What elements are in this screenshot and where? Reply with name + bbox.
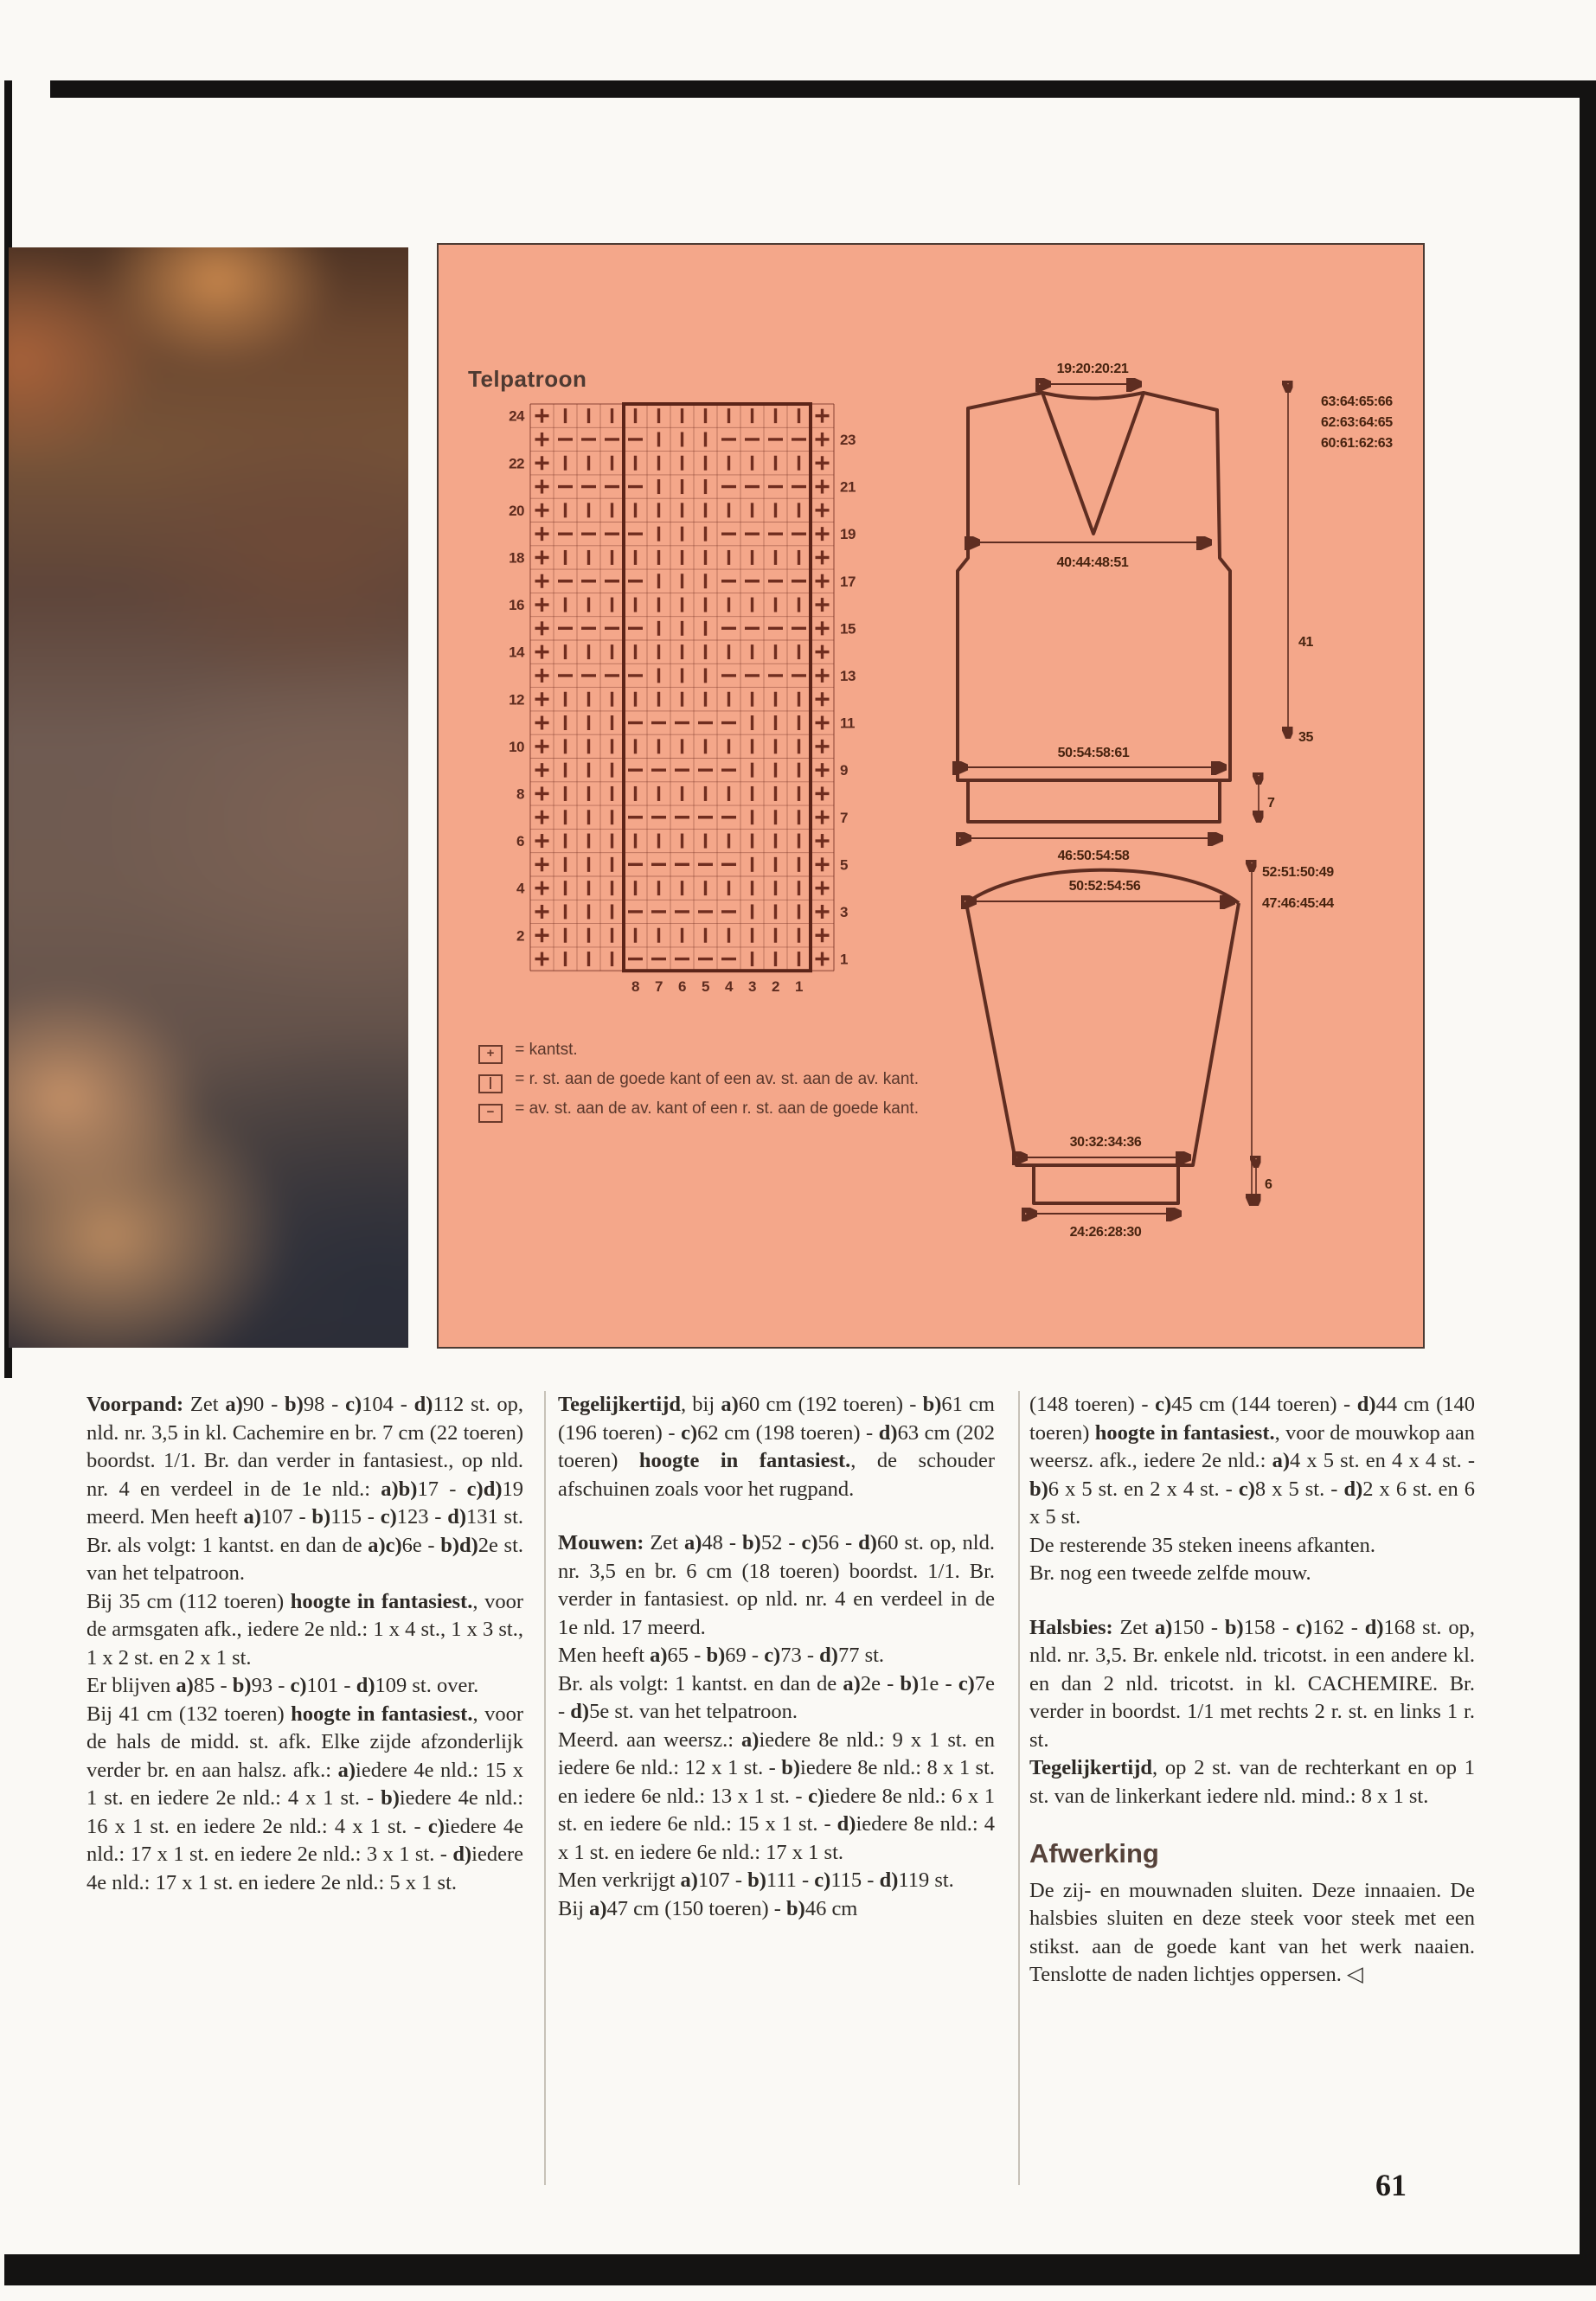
v-neck-line [1042, 393, 1144, 534]
svg-text:23: 23 [840, 432, 856, 448]
instruction-column-2: Tegelijkertijd, bij a)60 cm (192 toeren)… [558, 1391, 995, 1923]
legend-text: = r. st. aan de goede kant of een av. st… [510, 1070, 919, 1088]
paragraph: Br. nog een tweede zelfde mouw. [1029, 1560, 1475, 1588]
paragraph: Mouwen: Zet a)48 - b)52 - c)56 - d)60 st… [558, 1529, 995, 1642]
dim-rib-height: 7 [1267, 796, 1275, 811]
knitting-chart: 2423222120191817161514131211109876543218… [506, 390, 862, 1022]
dim-sleeve-upper-width: 30:32:34:36 [1070, 1135, 1142, 1150]
legend-symbol-icon: + [478, 1045, 503, 1064]
dim-sleeve-total-length: 52:51:50:49 [1262, 865, 1334, 880]
sleeve-cuff [1034, 1165, 1178, 1203]
paragraph: Br. als volgt: 1 kantst. en dan de a)2e … [558, 1670, 995, 1727]
svg-text:4: 4 [725, 978, 734, 995]
legend-symbol-icon: − [478, 1104, 503, 1123]
svg-text:8: 8 [516, 785, 524, 802]
legend-text: = av. st. aan de av. kant of een r. st. … [510, 1099, 919, 1118]
dim-cuff-width: 24:26:28:30 [1070, 1225, 1142, 1240]
photo-blur-layer [9, 247, 408, 1348]
svg-text:2: 2 [772, 978, 779, 995]
svg-text:4: 4 [516, 881, 525, 897]
svg-text:7: 7 [655, 978, 663, 995]
dim-sleeve-top-width: 50:52:54:56 [1069, 879, 1141, 894]
svg-text:14: 14 [509, 644, 525, 661]
svg-text:19: 19 [840, 526, 856, 542]
paragraph: De resterende 35 steken ineens afkanten. [1029, 1532, 1475, 1561]
svg-text:20: 20 [509, 503, 524, 519]
instructions: Voorpand: Zet a)90 - b)98 - c)104 - d)11… [0, 1391, 1596, 2252]
knitting-chart-svg: 2423222120191817161514131211109876543218… [506, 390, 862, 1022]
paragraph: De zij- en mouwnaden sluiten. Deze innaa… [1029, 1877, 1475, 1990]
legend-text: = kantst. [510, 1041, 578, 1059]
front-back-schematic: 19:20:20:21 40:44:48:51 50:54:58:61 46:5… [914, 335, 1433, 871]
dim-heights-3: 60:61:62:63 [1321, 436, 1393, 451]
legend-item-1: + = kantst. [478, 1039, 997, 1064]
svg-text:15: 15 [840, 620, 856, 637]
legend-item-2: | = r. st. aan de goede kant of een av. … [478, 1068, 997, 1093]
instruction-column-1: Voorpand: Zet a)90 - b)98 - c)104 - d)11… [87, 1391, 523, 1897]
dim-chest-width: 40:44:48:51 [1057, 555, 1129, 570]
svg-text:24: 24 [509, 408, 525, 425]
svg-text:12: 12 [509, 691, 524, 708]
svg-text:3: 3 [840, 904, 848, 920]
dim-heights-1: 63:64:65:66 [1321, 394, 1393, 409]
dim-heights-2: 62:63:64:65 [1321, 415, 1393, 430]
section-heading: Afwerking [1029, 1840, 1475, 1868]
svg-text:1: 1 [840, 952, 848, 968]
svg-text:5: 5 [702, 978, 709, 995]
paragraph: Tegelijkertijd, op 2 st. van de rechterk… [1029, 1754, 1475, 1811]
svg-text:16: 16 [509, 597, 524, 613]
legend-item-3: − = av. st. aan de av. kant of een r. st… [478, 1098, 997, 1123]
sleeve-sides [966, 903, 1239, 1165]
svg-text:8: 8 [631, 978, 639, 995]
fashion-photo [9, 247, 408, 1348]
paragraph: Halsbies: Zet a)150 - b)158 - c)162 - d)… [1029, 1614, 1475, 1755]
paragraph: (148 toeren) - c)45 cm (144 toeren) - d)… [1029, 1391, 1475, 1532]
svg-text:18: 18 [509, 549, 524, 566]
dim-side-height: 35 [1298, 730, 1313, 745]
paragraph: Tegelijkertijd, bij a)60 cm (192 toeren)… [558, 1391, 995, 1503]
svg-text:21: 21 [840, 479, 856, 496]
rib-band [968, 780, 1220, 822]
page-number: 61 [1375, 2167, 1407, 2203]
paragraph: Bij a)47 cm (150 toeren) - b)46 cm [558, 1895, 995, 1924]
pattern-panel: Telpatroon 24232221201918171615141312111… [437, 243, 1425, 1349]
instruction-column-3: (148 toeren) - c)45 cm (144 toeren) - d)… [1029, 1391, 1475, 1990]
paragraph: Bij 35 cm (112 toeren) hoogte in fantasi… [87, 1588, 523, 1673]
svg-text:17: 17 [840, 574, 856, 590]
legend-symbol-icon: | [478, 1074, 503, 1093]
paragraph: Men verkrijgt a)107 - b)111 - c)115 - d)… [558, 1867, 995, 1895]
svg-text:13: 13 [840, 668, 856, 684]
svg-text:22: 22 [509, 455, 524, 471]
svg-text:2: 2 [516, 927, 524, 944]
chart-title: Telpatroon [468, 366, 586, 393]
svg-text:6: 6 [678, 978, 686, 995]
page-border-bottom [4, 2254, 1596, 2285]
dim-top-width: 19:20:20:21 [1057, 362, 1129, 376]
paragraph: Meerd. aan weersz.: a)iedere 8e nld.: 9 … [558, 1727, 995, 1868]
column-separator-2 [1018, 1391, 1020, 2185]
body-outline [958, 393, 1230, 780]
sleeve-schematic: 50:52:54:56 30:32:34:36 24:26:28:30 52:5… [958, 856, 1442, 1262]
svg-text:3: 3 [748, 978, 756, 995]
svg-text:11: 11 [840, 715, 855, 732]
paragraph: Bij 41 cm (132 toeren) hoogte in fantasi… [87, 1701, 523, 1898]
svg-text:5: 5 [840, 856, 848, 873]
svg-text:7: 7 [840, 810, 848, 826]
paragraph: Voorpand: Zet a)90 - b)98 - c)104 - d)11… [87, 1391, 523, 1588]
chart-legend: + = kantst.| = r. st. aan de goede kant … [478, 1039, 997, 1127]
dim-cuff-height: 6 [1265, 1177, 1272, 1192]
column-separator-1 [544, 1391, 546, 2185]
dim-hem-width: 50:54:58:61 [1058, 746, 1130, 760]
paragraph: Er blijven a)85 - b)93 - c)101 - d)109 s… [87, 1672, 523, 1701]
svg-text:9: 9 [840, 762, 848, 779]
svg-text:6: 6 [516, 833, 524, 849]
svg-text:1: 1 [795, 978, 803, 995]
dim-sleeve-underarm-length: 47:46:45:44 [1262, 896, 1334, 911]
chart-column-numbers: 87654321 [631, 978, 803, 995]
dim-armhole-height: 41 [1298, 635, 1313, 650]
page-border-top [50, 80, 1596, 98]
svg-text:10: 10 [509, 739, 524, 755]
paragraph: Men heeft a)65 - b)69 - c)73 - d)77 st. [558, 1642, 995, 1670]
